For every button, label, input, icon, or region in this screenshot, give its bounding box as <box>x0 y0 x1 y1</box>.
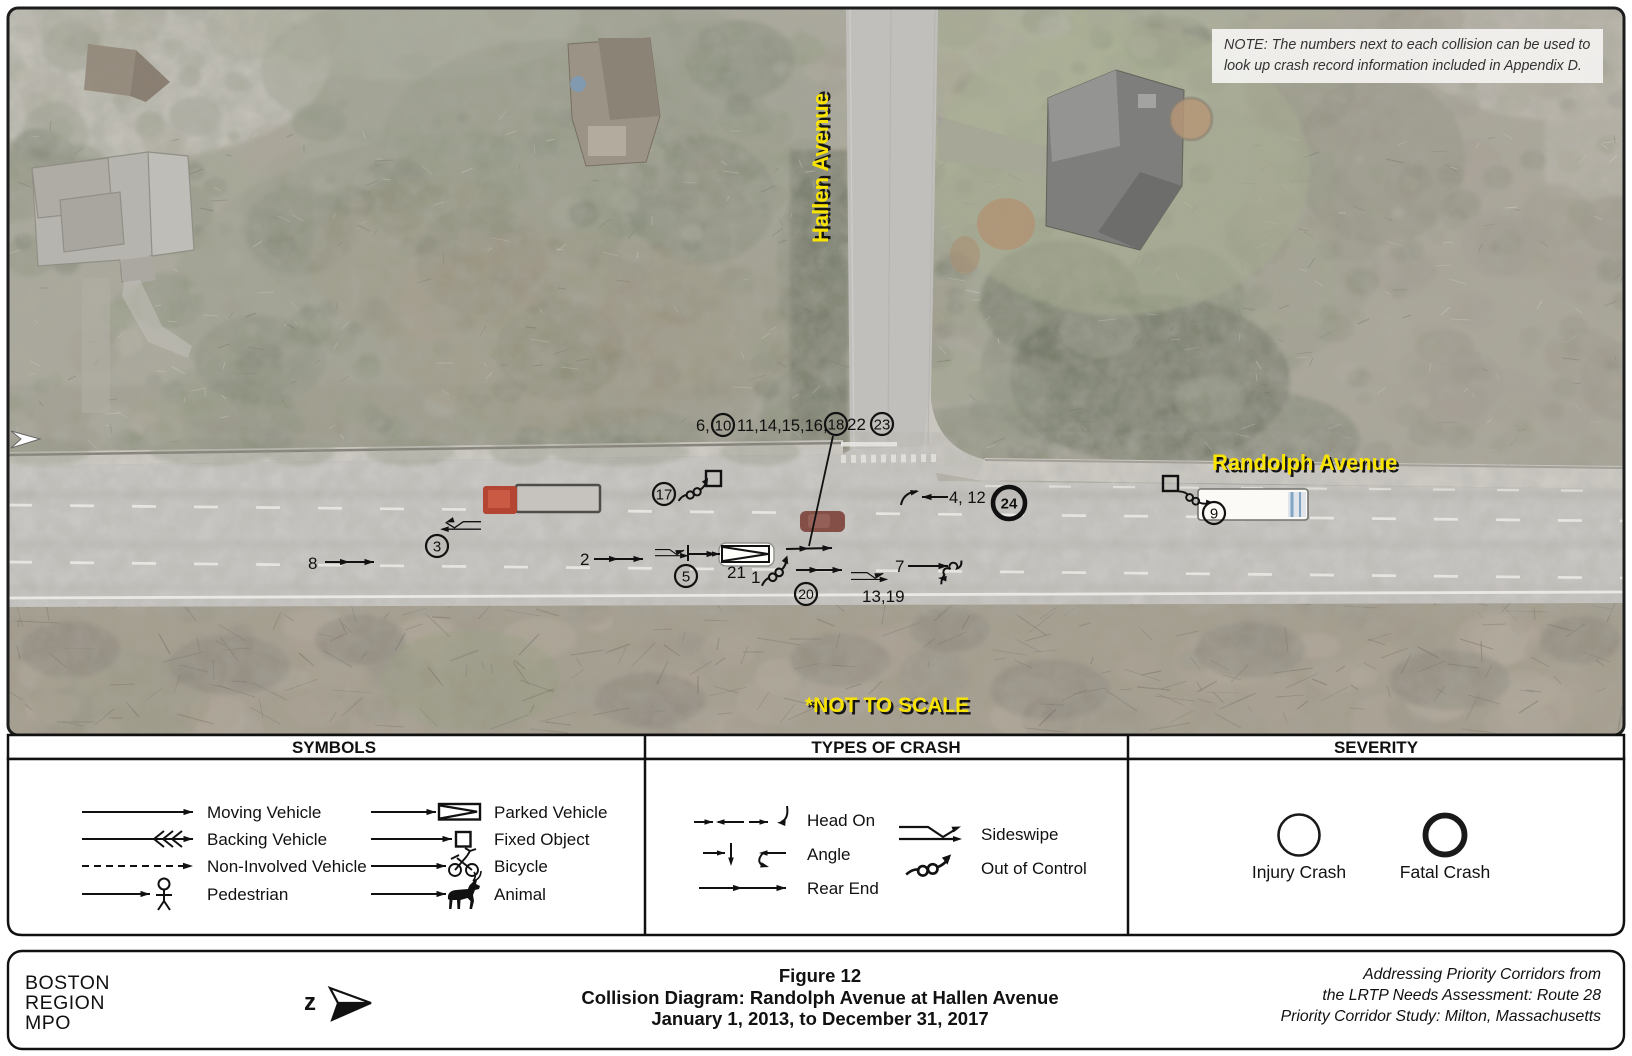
svg-text:Priority Corridor Study: Milto: Priority Corridor Study: Milton, Massach… <box>1281 1008 1602 1025</box>
svg-text:Rear End: Rear End <box>807 879 879 898</box>
svg-text:Out of Control: Out of Control <box>981 859 1087 878</box>
svg-text:Moving Vehicle: Moving Vehicle <box>207 803 321 822</box>
svg-text:TYPES OF CRASH: TYPES OF CRASH <box>811 738 960 757</box>
svg-text:3: 3 <box>433 538 441 555</box>
svg-text:21: 21 <box>727 563 746 582</box>
svg-text:7: 7 <box>895 557 904 576</box>
svg-text:11,14,15,16,: 11,14,15,16, <box>737 417 828 435</box>
svg-text:9: 9 <box>1210 505 1218 522</box>
svg-text:1: 1 <box>751 568 760 587</box>
svg-text:Collision Diagram: Randolph Av: Collision Diagram: Randolph Avenue at Ha… <box>581 987 1058 1008</box>
svg-text:23: 23 <box>874 416 891 433</box>
svg-text:4, 12: 4, 12 <box>949 489 986 507</box>
svg-text:MPO: MPO <box>25 1012 71 1034</box>
svg-text:NOTE: The numbers next to each: NOTE: The numbers next to each collision… <box>1224 37 1590 53</box>
svg-text:8: 8 <box>308 554 317 573</box>
svg-text:24: 24 <box>1001 495 1018 512</box>
svg-text:Non-Involved Vehicle: Non-Involved Vehicle <box>207 857 367 876</box>
svg-text:the LRTP Needs Assessment: Rou: the LRTP Needs Assessment: Route 28 <box>1322 987 1601 1004</box>
svg-text:22: 22 <box>847 415 866 434</box>
svg-text:BOSTON: BOSTON <box>25 972 110 994</box>
svg-text:z: z <box>304 989 316 1016</box>
svg-text:17: 17 <box>656 486 673 503</box>
svg-text:SYMBOLS: SYMBOLS <box>292 738 376 757</box>
svg-text:Fatal Crash: Fatal Crash <box>1400 862 1490 882</box>
svg-text:Injury Crash: Injury Crash <box>1252 862 1346 882</box>
svg-text:Backing Vehicle: Backing Vehicle <box>207 830 327 849</box>
svg-text:Angle: Angle <box>807 845 850 864</box>
svg-text:Head On: Head On <box>807 811 875 830</box>
svg-text:20: 20 <box>798 586 814 602</box>
svg-text:Hallen Avenue: Hallen Avenue <box>808 93 833 243</box>
svg-text:Addressing Priority Corridors: Addressing Priority Corridors from <box>1362 966 1601 983</box>
svg-text:SEVERITY: SEVERITY <box>1334 738 1419 757</box>
svg-text:Pedestrian: Pedestrian <box>207 885 288 904</box>
svg-text:look up crash record informati: look up crash record information include… <box>1224 58 1582 74</box>
svg-text:*NOT TO SCALE: *NOT TO SCALE <box>805 694 969 717</box>
svg-text:Fixed Object: Fixed Object <box>494 830 590 849</box>
svg-text:2: 2 <box>580 550 589 569</box>
svg-text:Animal: Animal <box>494 885 546 904</box>
svg-text:10: 10 <box>715 417 732 434</box>
svg-text:January 1, 2013, to December 3: January 1, 2013, to December 31, 2017 <box>651 1008 988 1029</box>
svg-text:Sideswipe: Sideswipe <box>981 825 1059 844</box>
svg-text:Randolph Avenue: Randolph Avenue <box>1212 450 1397 475</box>
svg-text:Bicycle: Bicycle <box>494 857 548 876</box>
svg-text:6,: 6, <box>696 417 710 435</box>
svg-text:Parked Vehicle: Parked Vehicle <box>494 803 607 822</box>
svg-text:REGION: REGION <box>25 992 105 1014</box>
svg-text:Figure 12: Figure 12 <box>779 965 861 986</box>
svg-text:5: 5 <box>682 568 690 585</box>
svg-text:18: 18 <box>828 416 845 433</box>
svg-text:13,19: 13,19 <box>862 587 905 606</box>
